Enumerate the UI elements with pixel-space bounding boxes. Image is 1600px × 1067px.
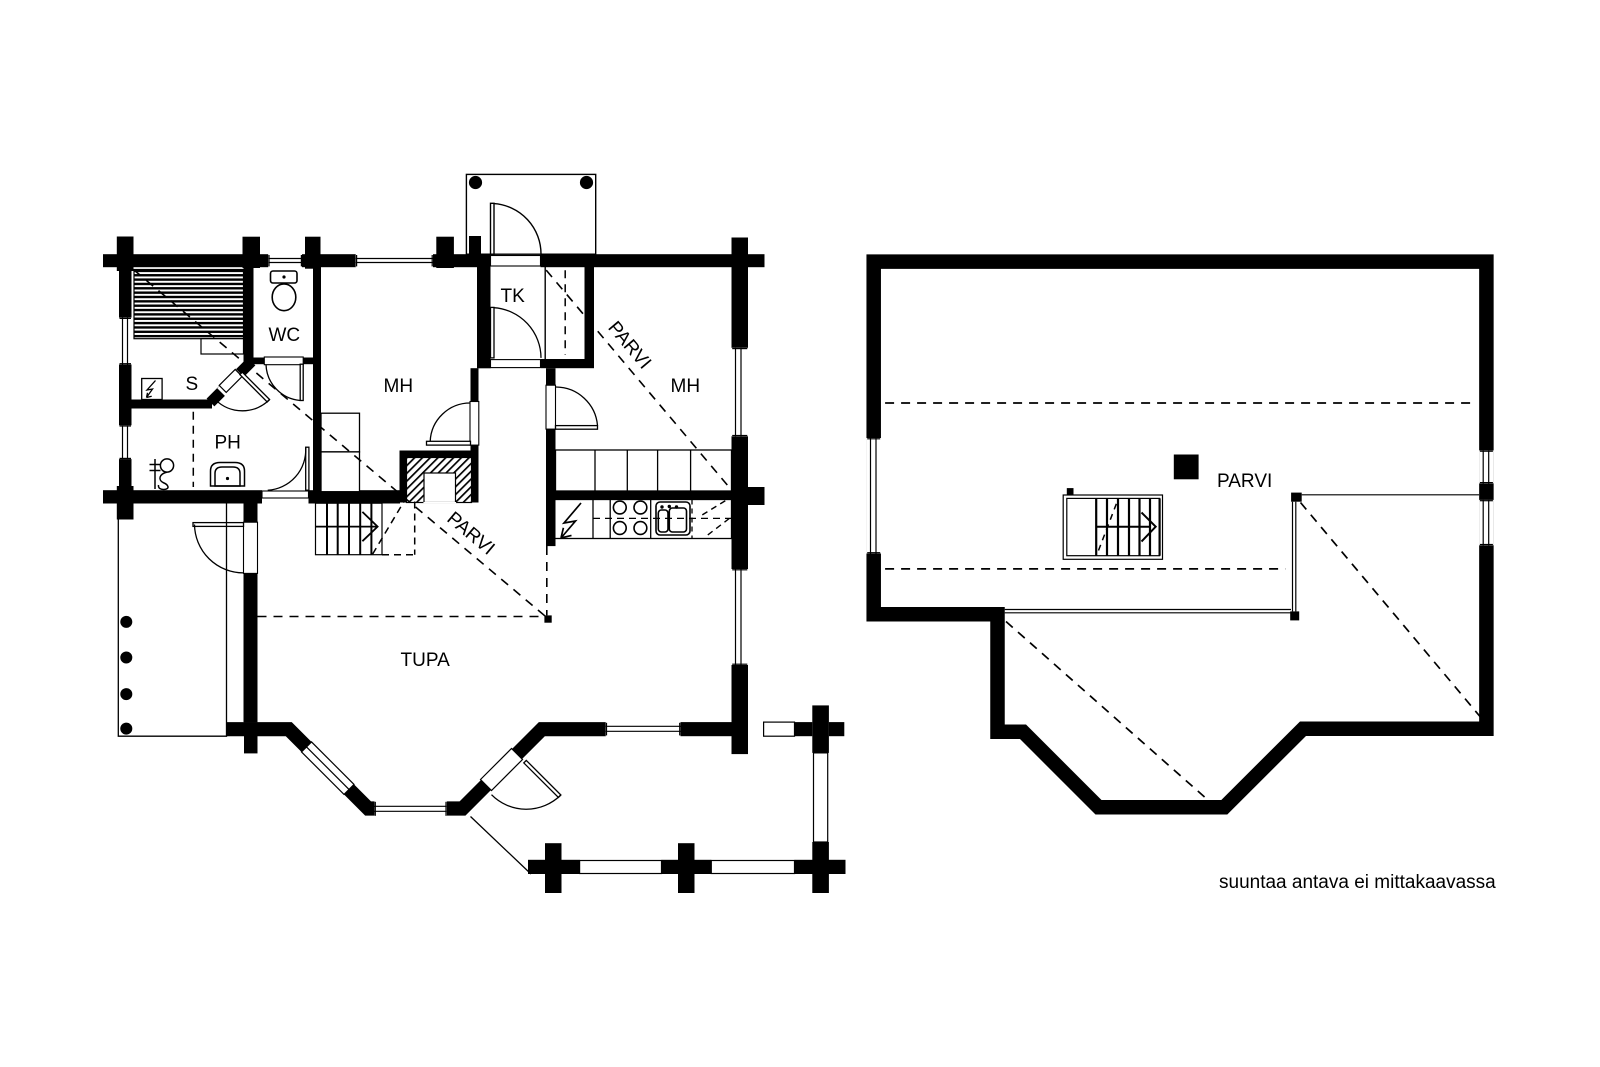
svg-text:S: S: [186, 374, 199, 395]
svg-text:PH: PH: [215, 433, 241, 454]
svg-text:suuntaa antava ei mittakaavass: suuntaa antava ei mittakaavassa: [1219, 872, 1496, 893]
svg-text:TK: TK: [501, 286, 526, 307]
svg-text:TUPA: TUPA: [401, 650, 451, 671]
svg-text:WC: WC: [269, 325, 301, 346]
svg-text:MH: MH: [671, 376, 701, 397]
svg-text:PARVI: PARVI: [1217, 471, 1272, 492]
svg-text:MH: MH: [384, 376, 414, 397]
